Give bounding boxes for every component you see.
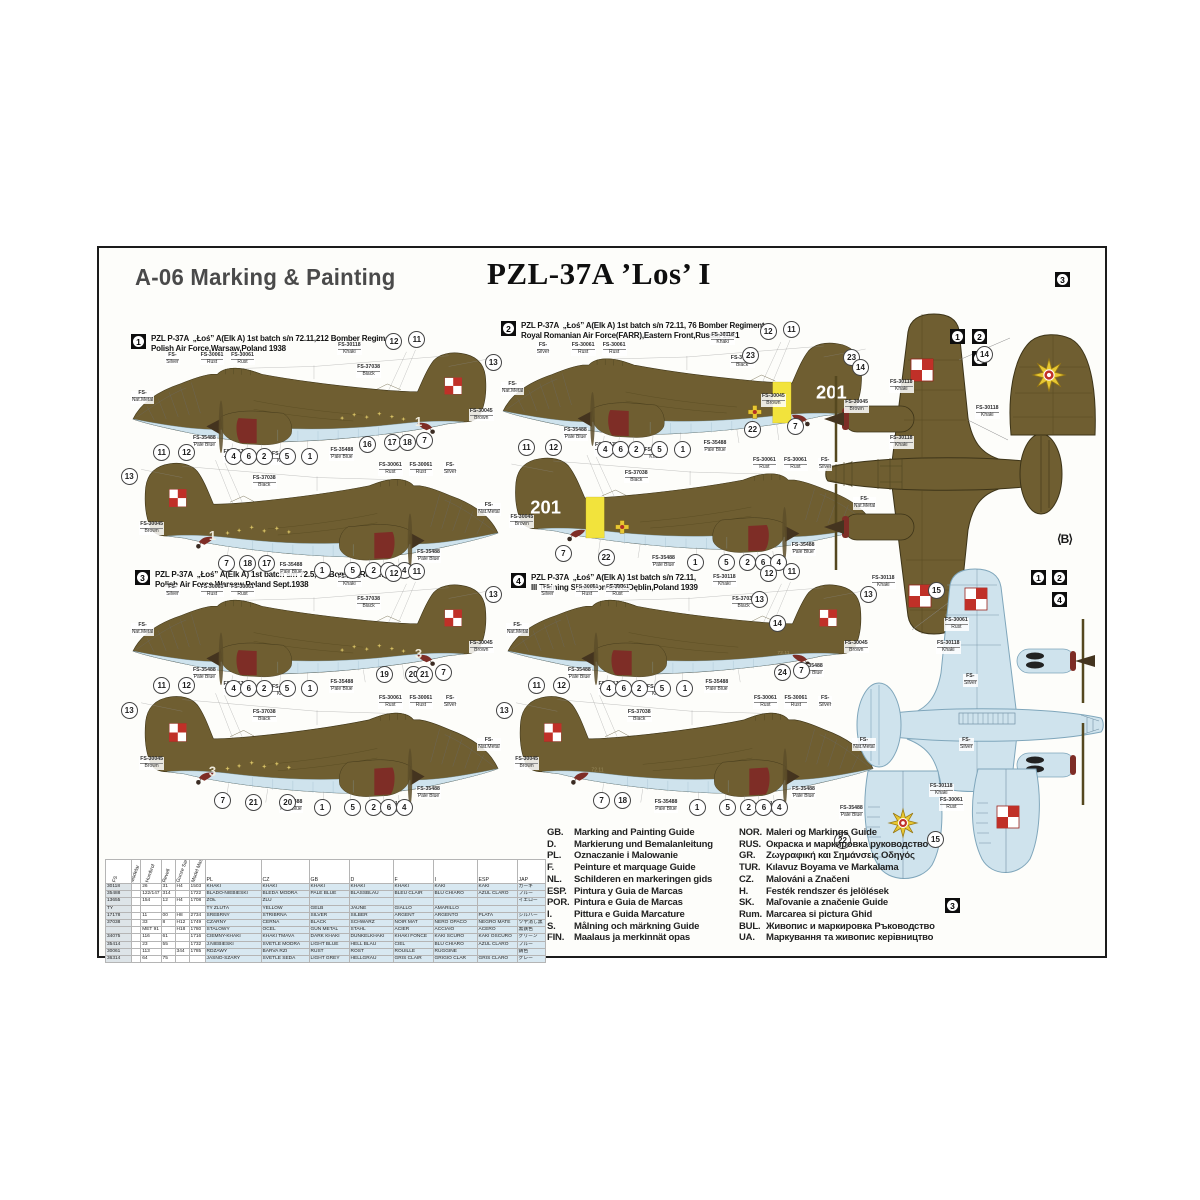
- fs-color-callout: FS-30118Khaki: [975, 406, 1000, 419]
- paint-table-row: TYTY ŽLUTÁYELLOWGELBJAUNEGIALLOAMARILLO: [106, 905, 546, 912]
- callout-number-1: 1: [674, 441, 691, 458]
- fs-color-name: Rust: [385, 702, 395, 708]
- fs-color-name: Khaki: [935, 790, 948, 796]
- paint-table-cell: GRIGIO CLAR: [433, 956, 477, 963]
- callout-number-23: 23: [742, 347, 759, 364]
- fs-color-name: Rust: [582, 591, 592, 597]
- paint-table-cell: SCHWARZ: [349, 920, 393, 927]
- paint-table-cell: 13655: [106, 898, 132, 905]
- fs-color-name: Rust: [385, 469, 395, 475]
- language-legend-right: NOR.Maleri og Markings GuideRUS.Окраска …: [739, 827, 935, 944]
- callout-number-11: 11: [783, 321, 800, 338]
- paint-table-cell: 1716: [189, 934, 205, 941]
- fs-color-callout: FS-Silver: [165, 353, 180, 366]
- paint-table-cell: BLU CHIARO: [433, 891, 477, 898]
- callout-number-1: 1: [676, 680, 693, 697]
- callout-number-7: 7: [555, 545, 572, 562]
- fs-color-name: Pale Blue: [655, 806, 676, 812]
- paint-table-cell: TY: [106, 905, 132, 912]
- paint-table-cell: [433, 898, 477, 905]
- fs-color-name: Rust: [951, 624, 961, 630]
- nacelle-cowl-panel: [236, 418, 256, 443]
- paint-table-cell: [517, 905, 545, 912]
- fs-color-callout: FS-30118Khaki: [712, 575, 737, 588]
- fs-color-callout: FS-37038Black: [627, 710, 652, 723]
- paint-table-cell: シルバー: [517, 912, 545, 919]
- nacelle-cowl-panel: [749, 768, 769, 796]
- paint-table-cell: ブルー: [517, 941, 545, 948]
- paint-table-cell: H8: [175, 912, 189, 919]
- fs-color-name: Nat.Metal: [507, 629, 528, 635]
- paint-table-cell: DARK KHAKI: [309, 934, 349, 941]
- fs-color-callout: FS-30118Khaki: [889, 380, 914, 393]
- paint-table-cell: 30061: [106, 948, 132, 955]
- paint-table-cell: [175, 905, 189, 912]
- fs-color-callout: FS-35488Pale Blue: [791, 787, 816, 800]
- paint-table-cell: グレー: [517, 956, 545, 963]
- fs-color-callout: FS-Silver: [443, 696, 458, 709]
- paint-table-cell: BLU CHIARO: [433, 941, 477, 948]
- fuselage-serial: 72.11: [591, 768, 603, 774]
- paint-table-cell: BLEU CLAIR: [393, 891, 433, 898]
- scheme-number: 2: [1054, 572, 1065, 583]
- callout-number-19: 19: [376, 666, 393, 683]
- callout-number-22: 22: [598, 549, 615, 566]
- fs-color-callout: FS-Silver: [443, 463, 458, 476]
- paint-table-cell: ŽLU: [261, 898, 309, 905]
- legend-lang-tag: CZ.: [739, 874, 766, 886]
- paint-table-cell: 35414: [106, 941, 132, 948]
- callout-number-13: 13: [121, 468, 138, 485]
- legend-text: Окраска и маркировка руководство: [766, 839, 928, 850]
- polish-checkerboard-marking: [445, 378, 462, 395]
- paint-table-cell: PALE BLUE: [309, 891, 349, 898]
- fs-color-name: Silver: [166, 359, 179, 365]
- fs-color-callout: FS-Silver: [818, 696, 833, 709]
- fs-color-callout: FS-30061Rust: [753, 696, 778, 709]
- fs-color-callout: FS-35488Pale Blue: [563, 428, 588, 441]
- callout-number-13: 13: [860, 586, 877, 603]
- fs-color-name: Rust: [612, 591, 622, 597]
- table-header-f: F: [393, 860, 433, 884]
- fs-color-callout: FS-35488Pale Blue: [329, 448, 354, 461]
- paint-table-cell: NOIR MAT: [393, 920, 433, 927]
- paint-table-cell: KAKI OSCURO: [477, 934, 517, 941]
- legend-lang-tag: POR.: [547, 897, 574, 909]
- fs-color-callout: FS-30045Brown: [761, 394, 786, 407]
- legend-line-rus: RUS.Окраска и маркировка руководство: [739, 839, 935, 851]
- fs-color-name: Silver: [819, 464, 832, 470]
- table-header-gunze-sangyo: Gunze Sangyo: [175, 860, 189, 884]
- callout-number-2: 2: [256, 448, 273, 465]
- paint-reference-table: FSModelarHumbrolRevellGunze SangyoModel …: [105, 859, 546, 963]
- callout-number-1: 1: [301, 680, 318, 697]
- scheme-number-box: 2: [501, 321, 516, 336]
- paint-table-cell: [132, 891, 141, 898]
- fuselage-serial: 72.11: [777, 650, 789, 656]
- fs-color-callout: FS-37038Black: [252, 710, 277, 723]
- paint-table-cell: [132, 956, 141, 963]
- callout-number-14: 14: [769, 615, 786, 632]
- legend-text: Målning och märkning Guide: [574, 921, 699, 932]
- polish-checkerboard-marking: [911, 359, 933, 381]
- paint-table-cell: KHAKI: [309, 884, 349, 891]
- fs-color-name: Brown: [850, 406, 864, 412]
- paint-table-cell: [132, 898, 141, 905]
- paint-table-cell: 116: [141, 934, 161, 941]
- fs-color-callout: FS-Nat.Metal: [477, 503, 500, 516]
- fs-color-name: Pale Blue: [793, 793, 814, 799]
- paint-table-cell: [141, 905, 161, 912]
- callout-number-5: 5: [279, 680, 296, 697]
- table-header-esp: ESP: [477, 860, 517, 884]
- legend-text: Festék rendszer és jelölések: [766, 886, 889, 897]
- nacelle-cowl-panel: [374, 532, 394, 559]
- paint-table-cell: HELLGRAU: [349, 956, 393, 963]
- fs-color-callout: FS-37038Black: [624, 471, 649, 484]
- fs-color-callout: FS-30045Brown: [469, 409, 494, 422]
- paint-table-cell: [132, 905, 141, 912]
- paint-table-cell: KAKI: [433, 884, 477, 891]
- fs-color-name: Brown: [474, 647, 488, 653]
- fs-color-callout: FS-37038Black: [356, 365, 381, 378]
- nacelle-cowl-panel: [611, 650, 631, 675]
- fs-color-name: Khaki: [716, 339, 729, 345]
- legend-lang-tag: FIN.: [547, 932, 574, 944]
- propeller-blade: [219, 633, 224, 686]
- callout-number-2: 2: [631, 680, 648, 697]
- legend-line-f: F.Peinture et marquage Guide: [547, 862, 713, 874]
- tail-wheel: [805, 422, 810, 427]
- tail-wheel: [196, 780, 201, 785]
- paint-table-cell: ブルー: [517, 891, 545, 898]
- scheme-number: 3: [1057, 274, 1068, 285]
- legend-line-ua: UA.Маркування та живопис керівництво: [739, 932, 935, 944]
- fs-color-callout: FS-30061Rust: [409, 696, 434, 709]
- callout-number-15: 15: [928, 582, 945, 599]
- fs-color-callout: FS-35488Pale Blue: [416, 787, 441, 800]
- paint-table-cell: [132, 912, 141, 919]
- scheme-number-box: 1: [950, 329, 965, 344]
- paint-table-cell: [189, 956, 205, 963]
- fs-color-name: Black: [362, 371, 374, 377]
- callout-number-5: 5: [651, 441, 668, 458]
- paint-table-cell: KHAKI TMAVÁ: [261, 934, 309, 941]
- paint-table-cell: 11: [141, 912, 161, 919]
- paint-table-cell: [477, 948, 517, 955]
- callout-number-7: 7: [793, 662, 810, 679]
- paint-table-cell: [175, 956, 189, 963]
- fs-color-name: Black: [258, 716, 270, 722]
- paint-table-cell: 1722: [189, 891, 205, 898]
- paint-table-cell: ツヤ消し黒: [517, 920, 545, 927]
- paint-table-cell: 黒鉄色: [517, 927, 545, 934]
- scheme-number-box: 1: [1031, 570, 1046, 585]
- paint-table-cell: ARGENTO: [433, 912, 477, 919]
- fs-color-name: Khaki: [981, 412, 994, 418]
- fs-color-callout: FS-Nat.Metal: [506, 623, 529, 636]
- fs-color-name: Brown: [766, 400, 780, 406]
- fs-color-callout: FS-30118Khaki: [871, 576, 896, 589]
- legend-text: Pintura e Guia de Marcas: [574, 897, 683, 908]
- tail-wheel: [571, 780, 576, 785]
- fs-color-callout: FS-30118Khaki: [710, 333, 735, 346]
- paint-table-cell: J.NIEBIESKI: [205, 941, 261, 948]
- callout-number-2: 2: [628, 441, 645, 458]
- fs-color-name: Rust: [791, 702, 801, 708]
- legend-lang-tag: PL.: [547, 850, 574, 862]
- paint-table-cell: SVĚTLE ŠEDÁ: [261, 956, 309, 963]
- callout-number-2: 2: [256, 680, 273, 697]
- fs-color-name: Pale Blue: [331, 454, 352, 460]
- fs-color-name: Silver: [819, 702, 832, 708]
- callout-number-5: 5: [344, 799, 361, 816]
- paint-table-cell: [132, 948, 141, 955]
- under-wing: [907, 569, 1017, 717]
- b-section-marker: ⟨B⟩: [1057, 532, 1072, 546]
- fs-color-name: Silver: [964, 680, 977, 686]
- table-header-d: D: [349, 860, 393, 884]
- paint-table-cell: H4: [175, 884, 189, 891]
- scheme-number: 1: [1033, 572, 1044, 583]
- legend-text: Markierung und Bemalanleitung: [574, 839, 713, 850]
- fs-color-name: Brown: [144, 763, 158, 769]
- table-header-revell: Revell: [161, 860, 175, 884]
- paint-table-cell: STAHL: [349, 927, 393, 934]
- legend-line-fin: FIN.Maalaus ja merkinnät opas: [547, 932, 713, 944]
- fs-color-callout: FS-30045Brown: [509, 515, 534, 528]
- propeller-blade: [590, 392, 595, 446]
- fs-color-name: Khaki: [895, 386, 908, 392]
- fs-color-name: Pale Blue: [653, 562, 674, 568]
- paint-table-cell: CZARNY: [205, 920, 261, 927]
- legend-lang-tag: UA.: [739, 932, 766, 944]
- legend-lang-tag: GR.: [739, 850, 766, 862]
- paint-table-cell: [132, 920, 141, 927]
- fs-color-callout: FS-30118Khaki: [337, 343, 362, 356]
- legend-line-tur: TUR.Kılavuz Boyama ve Markalama: [739, 862, 935, 874]
- paint-table-cell: ACERO: [477, 927, 517, 934]
- legend-lang-tag: D.: [547, 839, 574, 851]
- fs-color-callout: FS-30061Rust: [752, 458, 777, 471]
- fs-color-name: Black: [362, 603, 374, 609]
- fs-color-callout: FS-30118Khaki: [936, 641, 961, 654]
- paint-table-cell: BLASSBLAU: [349, 891, 393, 898]
- callout-number-22: 22: [744, 421, 761, 438]
- fs-color-name: Rust: [207, 359, 217, 365]
- fs-color-callout: FS-30061Rust: [784, 696, 809, 709]
- propeller-blade: [782, 507, 787, 561]
- legend-lang-tag: I.: [547, 909, 574, 921]
- propeller-blade: [594, 633, 599, 686]
- callout-number-5: 5: [279, 448, 296, 465]
- fs-color-name: Rust: [759, 464, 769, 470]
- paint-table-cell: KHAKI: [393, 884, 433, 891]
- fs-color-name: Pale Blue: [706, 686, 727, 692]
- legend-lang-tag: F.: [547, 862, 574, 874]
- fs-color-callout: FS-Nat.Metal: [131, 623, 154, 636]
- legend-lang-tag: Rum.: [739, 909, 766, 921]
- fs-color-name: Nat.Metal: [502, 388, 523, 394]
- paint-table-cell: [161, 905, 175, 912]
- fs-color-callout: FS-30061Rust: [575, 585, 600, 598]
- fs-color-name: Nat.Metal: [132, 629, 153, 635]
- scheme-number-box: 3: [945, 898, 960, 913]
- callout-number-6: 6: [612, 441, 629, 458]
- callout-number-14: 14: [976, 346, 993, 363]
- paint-table-cell: RUST: [309, 948, 349, 955]
- fs-color-name: Khaki: [895, 442, 908, 448]
- paint-table-cell: [132, 884, 141, 891]
- fs-color-callout: FS-Nat.Metal: [853, 497, 876, 510]
- polish-checkerboard-marking: [544, 723, 561, 741]
- fs-color-callout: FS-Silver: [959, 738, 974, 751]
- legend-text: Marking and Painting Guide: [574, 827, 694, 838]
- propeller-blade: [783, 748, 788, 805]
- paint-table-cell: HELL BLAU: [349, 941, 393, 948]
- callout-number-4: 4: [771, 799, 788, 816]
- scheme-number: 4: [1054, 594, 1065, 605]
- paint-table-cell: TY ŽLUTÁ: [205, 905, 261, 912]
- fs-color-name: Black: [737, 603, 749, 609]
- legend-lang-tag: NL.: [547, 874, 574, 886]
- fs-color-name: Rust: [946, 804, 956, 810]
- fs-color-name: Khaki: [343, 349, 356, 355]
- legend-text: Oznaczanie i Malowanie: [574, 850, 678, 861]
- fs-color-name: Khaki: [718, 581, 731, 587]
- fs-color-name: Rust: [416, 702, 426, 708]
- fs-color-name: Pale Blue: [194, 442, 215, 448]
- polish-checkerboard-marking: [965, 588, 987, 610]
- fs-color-callout: FS-35488Pale Blue: [703, 441, 728, 454]
- fs-color-callout: FS-30061Rust: [602, 343, 627, 356]
- fs-color-name: Pale Blue: [792, 549, 813, 555]
- fs-color-callout: FS-35488Pale Blue: [192, 668, 217, 681]
- table-header-pl: PL: [205, 860, 261, 884]
- paint-table-cell: 26: [141, 884, 161, 891]
- callout-number-7: 7: [214, 792, 231, 809]
- callout-number-7: 7: [416, 432, 433, 449]
- fs-color-name: Khaki: [343, 581, 356, 587]
- paint-table-cell: NEGRO MATE: [477, 920, 517, 927]
- fs-color-name: Pale Blue: [331, 686, 352, 692]
- paint-table-cell: GIALLO: [393, 905, 433, 912]
- legend-text: Marcarea si pictura Ghid: [766, 909, 872, 920]
- fs-color-name: Pale Blue: [194, 674, 215, 680]
- paint-table-cell: [189, 905, 205, 912]
- legend-line-i: I.Pittura e Guida Marcature: [547, 909, 713, 921]
- tail-wheel: [196, 544, 201, 549]
- paint-table-cell: BLEDÁ MODRÁ: [261, 891, 309, 898]
- paint-table-cell: [161, 927, 175, 934]
- fs-color-name: Nat.Metal: [478, 744, 499, 750]
- legend-line-gb: GB.Marking and Painting Guide: [547, 827, 713, 839]
- fs-color-callout: FS-35488Pale Blue: [651, 556, 676, 569]
- callout-number-13: 13: [496, 702, 513, 719]
- paint-table-row: MET 91H181780STALOWYOCELGUN METALSTAHLAC…: [106, 927, 546, 934]
- fuselage-under: [869, 709, 1104, 742]
- fs-color-name: Rust: [237, 591, 247, 597]
- paint-table-cell: KAKI: [477, 884, 517, 891]
- paint-table-cell: OCEL: [261, 927, 309, 934]
- paint-table-cell: NERO OPACO: [433, 920, 477, 927]
- paint-table-cell: イエロー: [517, 898, 545, 905]
- fs-color-name: Brown: [474, 415, 488, 421]
- paint-table-cell: AZUL CLARO: [477, 941, 517, 948]
- paint-table-cell: KAKI SCURO: [433, 934, 477, 941]
- fs-color-name: Pale Blue: [704, 447, 725, 453]
- fs-color-name: Pale Blue: [569, 674, 590, 680]
- paint-table-cell: ACCIAIO: [433, 927, 477, 934]
- callout-number-1: 1: [314, 799, 331, 816]
- table-header-fs: FS: [106, 860, 132, 884]
- paint-table-cell: LIGHT GREY: [309, 956, 349, 963]
- fs-color-name: Rust: [790, 464, 800, 470]
- table-header-cz: CZ: [261, 860, 309, 884]
- fs-color-callout: FS-37038Black: [252, 476, 277, 489]
- fs-color-name: Brown: [144, 528, 158, 534]
- instruction-sheet: A-06 Marking & Painting PZL-37A ’Los’ I …: [97, 246, 1107, 958]
- paint-table-row: 171781100H82734SREBRNYSTŘÍBRNÁSILVERSILB…: [106, 912, 546, 919]
- fs-color-callout: FS-30118Khaki: [889, 436, 914, 449]
- paint-table-cell: ROST: [349, 948, 393, 955]
- fs-color-callout: FS-30061Rust: [378, 463, 403, 476]
- legend-text: Maleri og Markings Guide: [766, 827, 877, 838]
- callout-number-18: 18: [399, 434, 416, 451]
- paint-table-cell: [309, 898, 349, 905]
- fs-color-name: Silver: [960, 744, 973, 750]
- legend-line-gr: GR.Ζωγραφική και Σημάνσεις Οδηγός: [739, 850, 935, 862]
- legend-lang-tag: SK.: [739, 897, 766, 909]
- legend-text: Живопис и маркировка Ръководство: [766, 921, 935, 932]
- paint-table-cell: [175, 934, 189, 941]
- paint-table-cell: ARGENT: [393, 912, 433, 919]
- paint-table-cell: [132, 941, 141, 948]
- paint-table-row: 37038338H121749CZARNYČERNÁBLACKSCHWARZNO…: [106, 920, 546, 927]
- paint-table-cell: [161, 948, 175, 955]
- fs-color-name: Nat.Metal: [132, 397, 153, 403]
- legend-line-nl: NL.Schilderen en markeringen gids: [547, 874, 713, 886]
- legend-line-rum: Rum.Marcarea si pictura Ghid: [739, 909, 935, 921]
- paint-table-cell: BLACK: [309, 920, 349, 927]
- nacelle-cowl-panel: [748, 525, 769, 551]
- callout-number-6: 6: [615, 680, 632, 697]
- scheme-number: 3: [947, 900, 958, 911]
- callout-number-5: 5: [719, 799, 736, 816]
- callout-number-14: 14: [852, 359, 869, 376]
- paint-table-cell: 37038: [106, 920, 132, 927]
- paint-table-row: 1365515412H41708ŻÓŁŽLUイエロー: [106, 898, 546, 905]
- tail-wheel: [430, 662, 435, 666]
- callout-number-7: 7: [787, 418, 804, 435]
- alt-wingtip-upper: [1010, 335, 1095, 435]
- paint-table-cell: YELLOW: [261, 905, 309, 912]
- paint-table-cell: [393, 898, 433, 905]
- legend-lang-tag: S.: [547, 921, 574, 933]
- paint-table-cell: H18: [175, 927, 189, 934]
- nacelle-cowl-panel: [236, 650, 256, 675]
- paint-table-cell: 17178: [106, 912, 132, 919]
- fs-color-name: Brown: [849, 647, 863, 653]
- callout-number-13: 13: [751, 591, 768, 608]
- paint-table-row: 3541423551732J.NIEBIESKISVĚTLE MODRÁLIGH…: [106, 941, 546, 948]
- table-header-gb: GB: [309, 860, 349, 884]
- fs-color-callout: FS-30061Rust: [200, 585, 225, 598]
- legend-line-nor: NOR.Maleri og Markings Guide: [739, 827, 935, 839]
- scheme-number: 2: [503, 323, 514, 334]
- scheme-number-box: 3: [1055, 272, 1070, 287]
- fs-color-name: Silver: [444, 469, 457, 475]
